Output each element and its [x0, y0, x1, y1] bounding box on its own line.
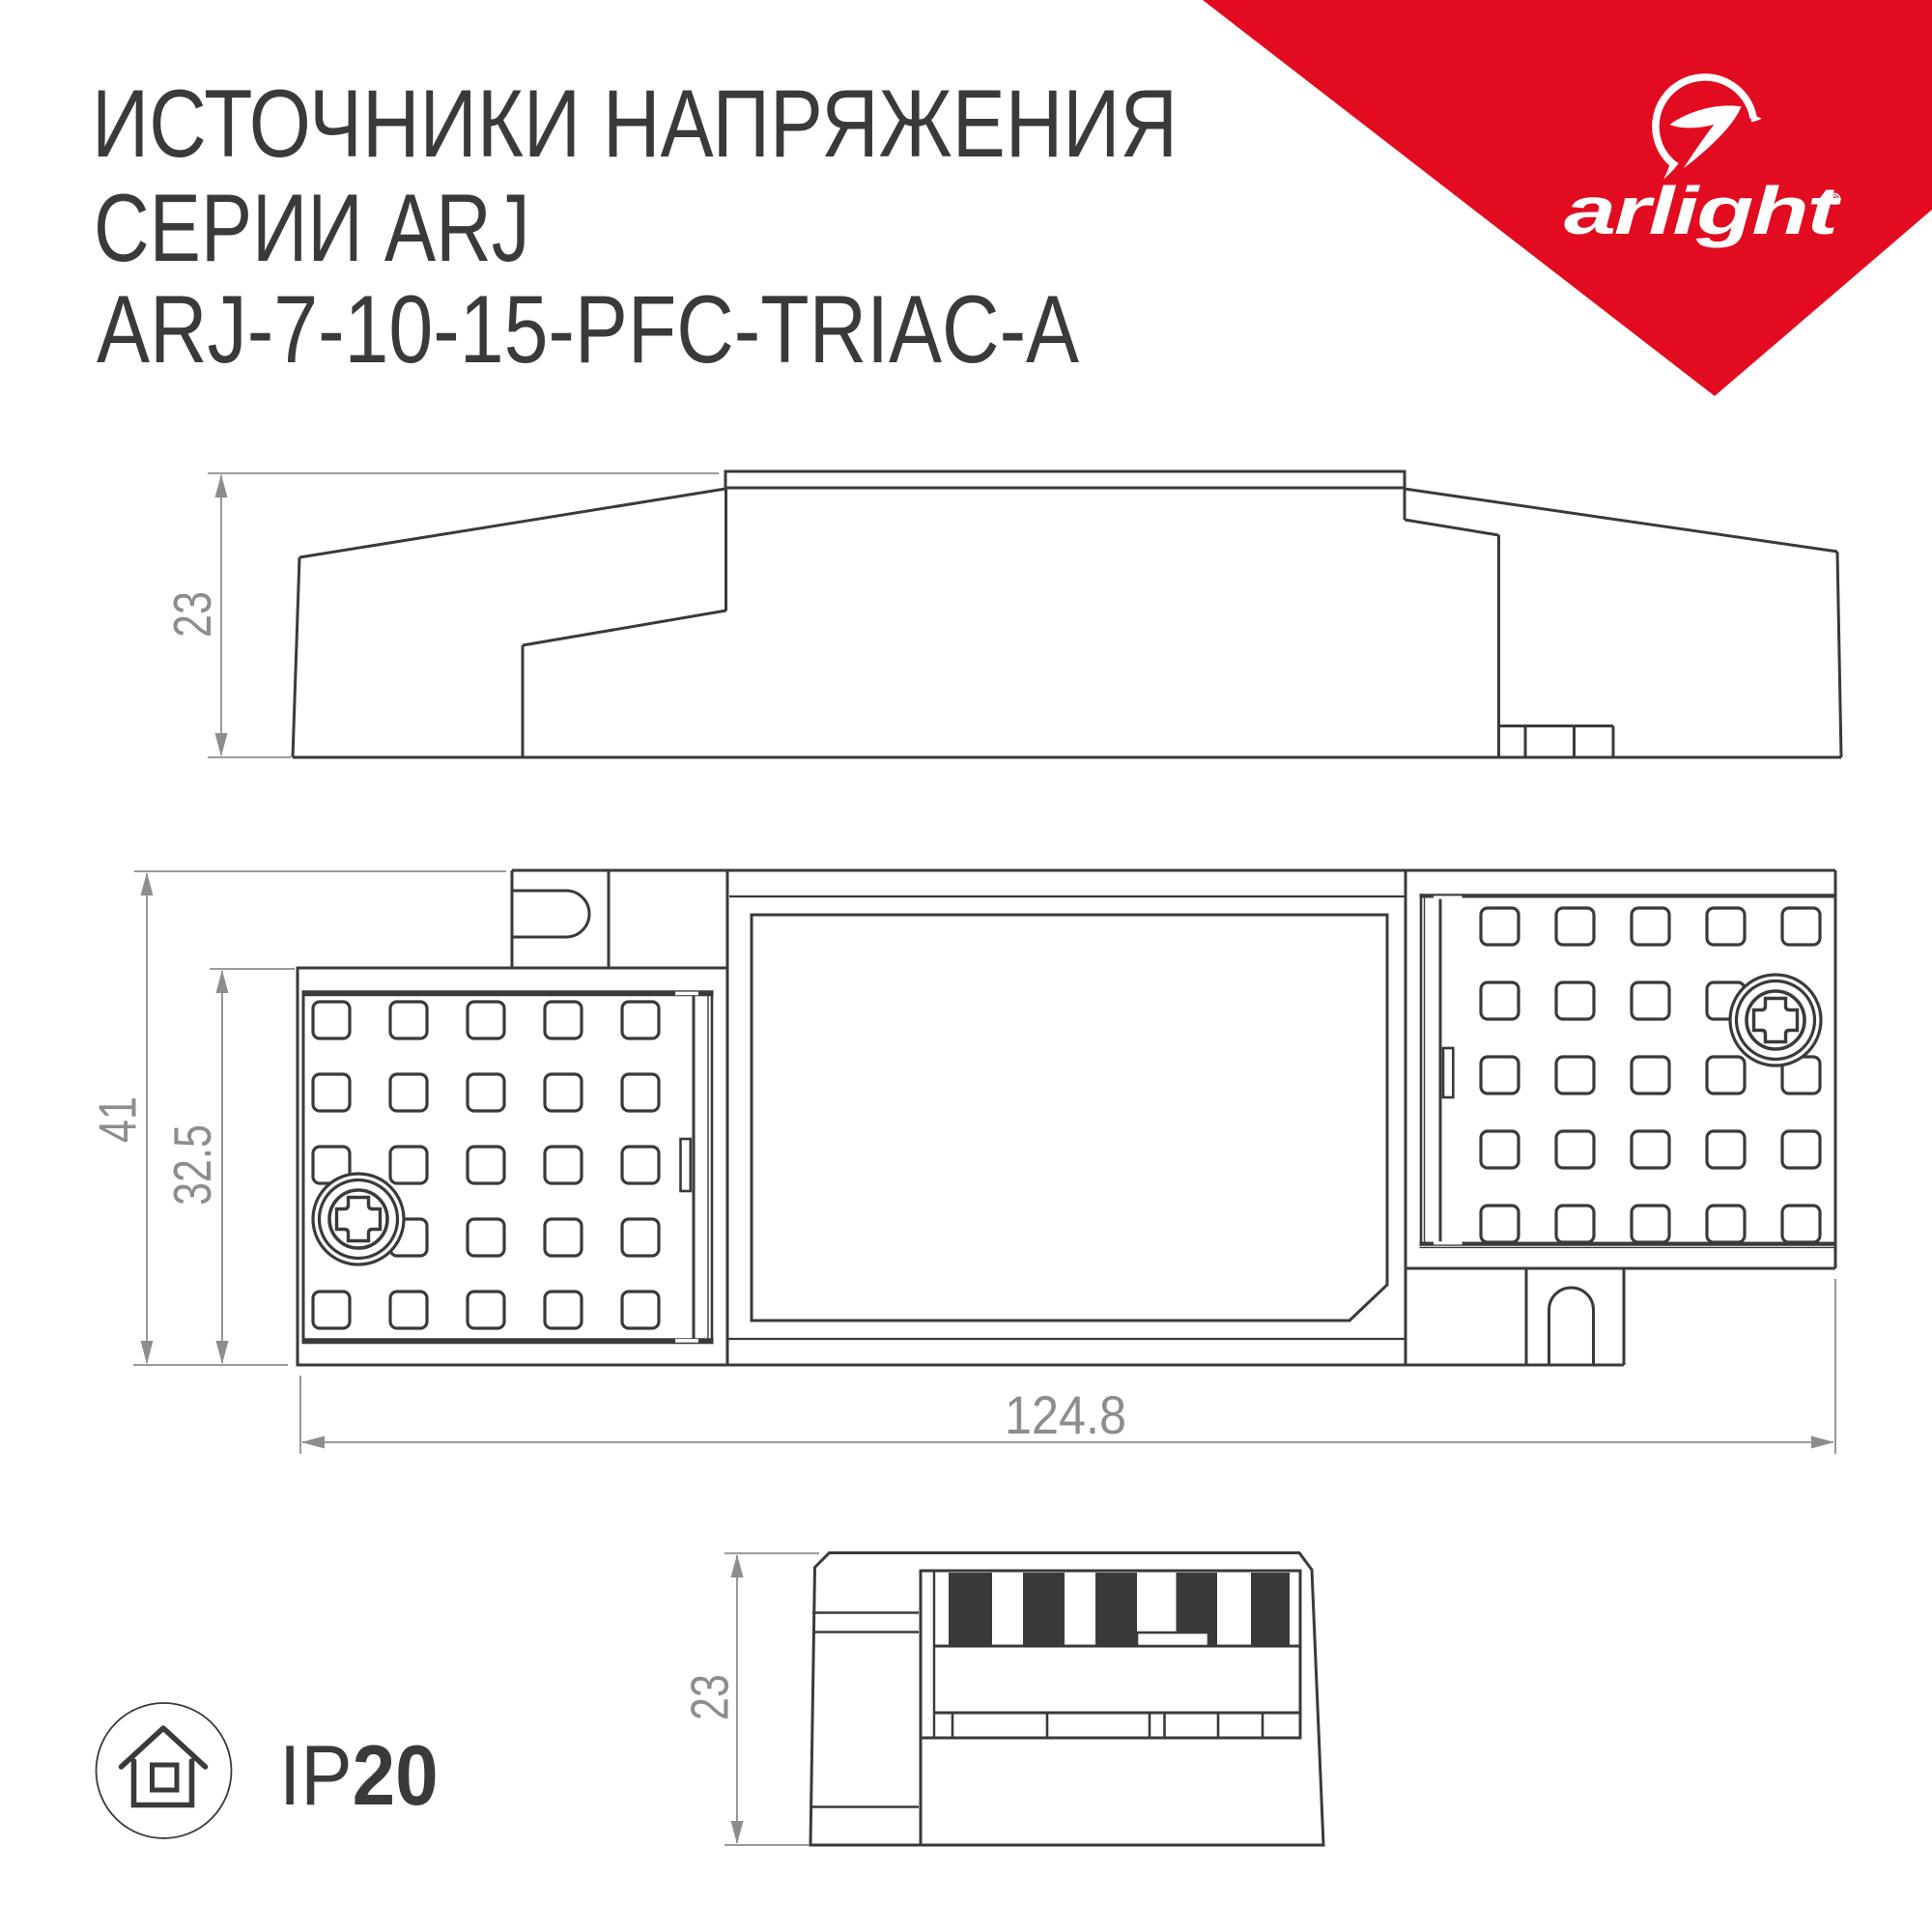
svg-text:СЕРИИ ARJ: СЕРИИ ARJ	[94, 176, 530, 282]
svg-text:IP20: IP20	[279, 1728, 439, 1823]
svg-text:ИСТОЧНИКИ НАПРЯЖЕНИЯ: ИСТОЧНИКИ НАПРЯЖЕНИЯ	[92, 71, 1178, 178]
svg-text:124.8: 124.8	[1005, 1386, 1126, 1446]
svg-text:23: 23	[682, 1674, 740, 1720]
svg-text:32.5: 32.5	[164, 1124, 222, 1206]
svg-text:41: 41	[90, 1096, 148, 1143]
svg-text:ARJ-7-10-15-PFC-TRIAC-A: ARJ-7-10-15-PFC-TRIAC-A	[97, 277, 1079, 384]
svg-text:23: 23	[164, 591, 222, 638]
svg-text:arlight: arlight	[1564, 172, 1842, 248]
